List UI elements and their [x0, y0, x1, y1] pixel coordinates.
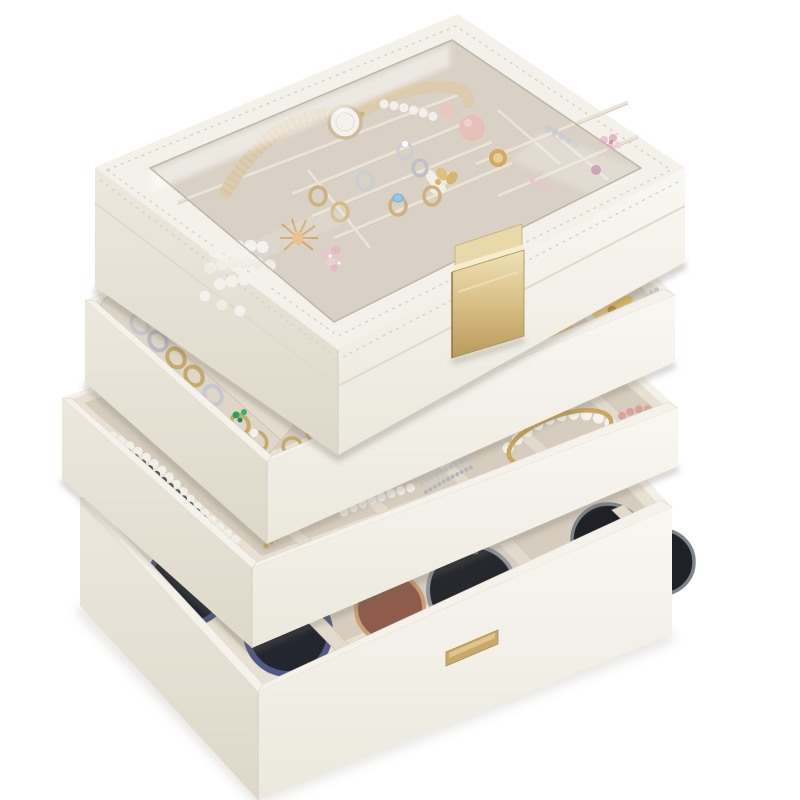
product-photo-stage [0, 0, 800, 800]
gold-clasp [452, 224, 524, 362]
jewelry-box-photo [0, 0, 800, 800]
